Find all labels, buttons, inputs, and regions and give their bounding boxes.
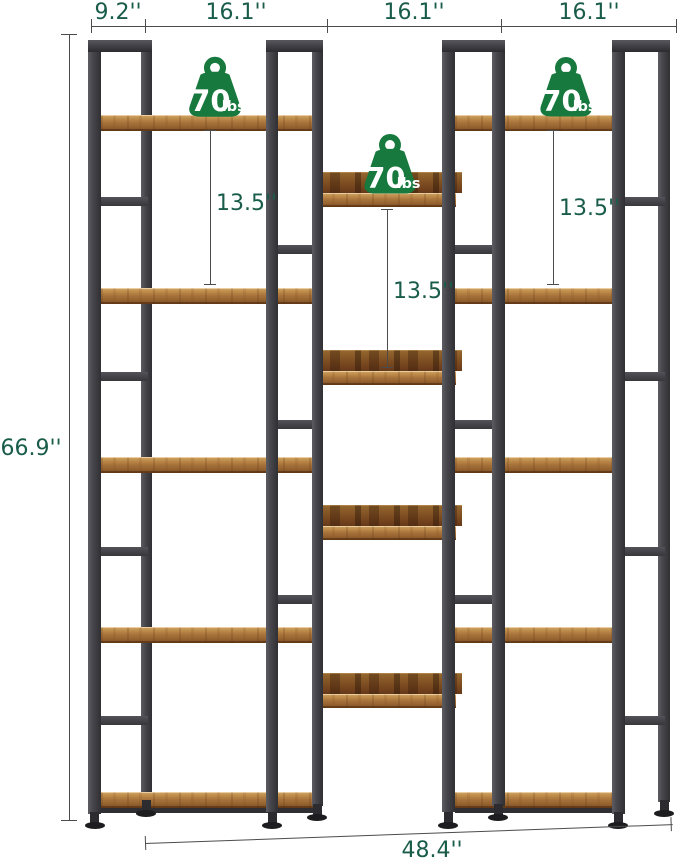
dimension-end-cap (145, 836, 147, 850)
weight-capacity-icon: 70 lbs (176, 55, 254, 118)
weight-icon: 70 lbs (352, 132, 428, 195)
shelf-spacing-dimension-line (387, 210, 388, 368)
top-dimension-line (91, 26, 677, 27)
frame-top-bar (266, 40, 323, 52)
wood-shelf-right-5 (455, 792, 612, 808)
weight-capacity-unit: lbs (573, 99, 597, 115)
shelf-back-rail-middle-4 (316, 673, 462, 694)
depth-dimension-label: 9.2'' (86, 1, 150, 25)
height-dimension-line (69, 35, 70, 821)
wood-shelf-right-4 (455, 627, 612, 643)
shelf-support-bar (455, 808, 612, 813)
weight-capacity-unit: lbs (222, 99, 246, 115)
wood-shelf-left-4 (101, 627, 322, 643)
frame-post-junction-left-front (266, 40, 278, 812)
dimension-end-cap (61, 820, 77, 821)
shelf-support-bar (101, 808, 322, 813)
frame-post-junction-left-back (312, 46, 323, 806)
frame-rung (450, 420, 495, 429)
shelf-spacing-dimension-line (210, 131, 211, 285)
frame-rung (618, 372, 665, 381)
wood-shelf-middle-1 (320, 193, 456, 207)
leveling-foot (488, 814, 508, 821)
frame-rung (618, 547, 665, 556)
wood-shelf-left-3 (101, 457, 322, 473)
dimension-end-cap (204, 284, 216, 285)
leveling-foot (654, 810, 674, 817)
dimension-end-cap (204, 130, 216, 131)
dimension-end-cap (670, 817, 672, 831)
wood-shelf-left-2 (101, 288, 322, 304)
leveling-foot (438, 822, 458, 829)
frame-post-left-back (141, 46, 152, 802)
wood-shelf-middle-2 (320, 371, 456, 385)
frame-post-junction-right-back (492, 44, 505, 806)
weight-icon: 70 lbs (176, 55, 254, 118)
wood-shelf-middle-3 (320, 526, 456, 540)
leveling-foot (307, 814, 327, 821)
frame-rung (98, 547, 148, 556)
dimension-end-cap (61, 34, 77, 35)
weight-icon: 70 lbs (528, 55, 604, 118)
frame-top-bar (88, 40, 152, 52)
frame-rung (98, 197, 148, 206)
frame-post-right-back (658, 44, 670, 802)
dimension-tick (501, 19, 502, 33)
weight-capacity-icon: 70 lbs (528, 55, 604, 118)
height-dimension-label: 66.9'' (0, 437, 62, 461)
shelf-spacing-label: 13.5'' (216, 192, 280, 216)
dimension-end-cap (381, 209, 393, 210)
frame-top-bar (612, 40, 670, 52)
weight-capacity-unit: lbs (397, 176, 421, 192)
dimension-end-cap (547, 284, 559, 285)
weight-capacity-icon: 70 lbs (352, 132, 428, 195)
wood-shelf-left-5 (101, 792, 322, 808)
frame-rung (618, 197, 665, 206)
shelf-spacing-label: 13.5'' (559, 197, 623, 221)
total-width-label: 48.4'' (386, 839, 478, 863)
wood-shelf-middle-4 (320, 694, 456, 708)
frame-post-right-front (612, 40, 625, 814)
frame-post-left-front (88, 40, 101, 814)
dimension-end-cap (547, 130, 559, 131)
frame-rung (618, 716, 665, 725)
frame-rung (98, 716, 148, 725)
section-width-dimension-label: 16.1'' (195, 1, 277, 25)
frame-rung (98, 372, 148, 381)
leveling-foot (85, 822, 105, 829)
bookshelf-product-image: 9.2'' 16.1'' 16.1'' 16.1'' 66.9'' 13.5''… (0, 0, 679, 863)
section-width-dimension-label: 16.1'' (373, 1, 455, 25)
section-width-dimension-label: 16.1'' (548, 1, 630, 25)
shelf-back-rail-middle-3 (316, 505, 462, 526)
frame-top-bar (442, 40, 505, 52)
shelf-spacing-label: 13.5'' (393, 280, 457, 304)
wood-shelf-right-2 (455, 288, 612, 304)
dimension-tick (676, 19, 677, 33)
shelf-spacing-dimension-line (553, 131, 554, 285)
frame-rung (450, 595, 495, 604)
frame-post-junction-right-front (442, 40, 455, 812)
frame-rung (450, 245, 495, 254)
dimension-end-cap (381, 367, 393, 368)
dimension-tick (327, 19, 328, 33)
leveling-foot (136, 810, 156, 817)
leveling-foot (262, 822, 282, 829)
wood-shelf-right-3 (455, 457, 612, 473)
